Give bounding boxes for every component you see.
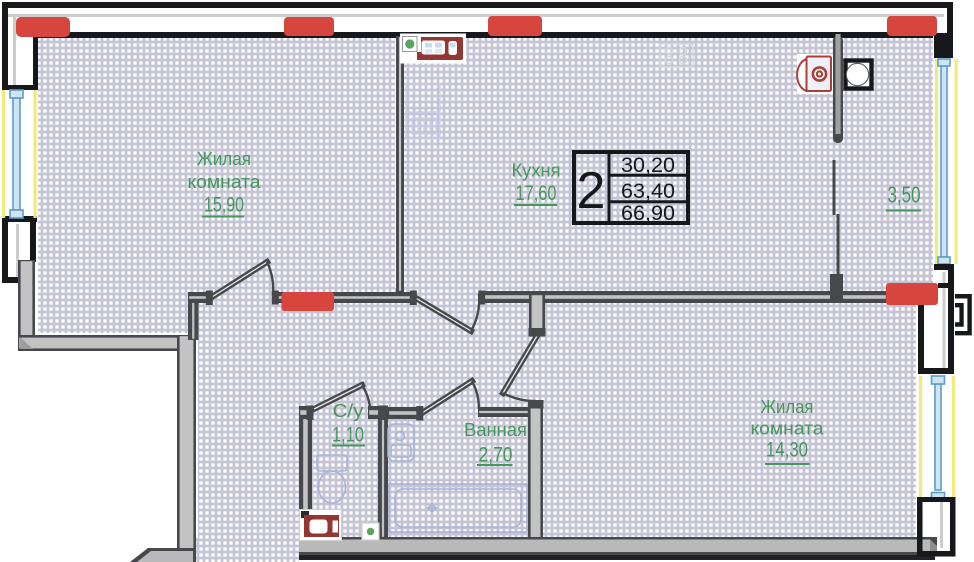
svg-text:3,50: 3,50 bbox=[888, 182, 921, 208]
svg-text:комната: комната bbox=[751, 419, 825, 439]
svg-text:Ванная: Ванная bbox=[464, 420, 527, 440]
svg-text:С/у: С/у bbox=[333, 401, 364, 421]
svg-text:66,90: 66,90 bbox=[621, 202, 675, 225]
svg-text:17,60: 17,60 bbox=[516, 182, 557, 205]
svg-text:Жилая: Жилая bbox=[761, 397, 814, 417]
svg-text:2,70: 2,70 bbox=[479, 444, 513, 467]
svg-text:1,10: 1,10 bbox=[332, 424, 364, 447]
svg-text:30,20: 30,20 bbox=[621, 154, 675, 177]
svg-text:14,30: 14,30 bbox=[766, 439, 808, 462]
svg-text:15,90: 15,90 bbox=[204, 194, 244, 217]
svg-text:2: 2 bbox=[577, 162, 606, 220]
svg-text:Кухня: Кухня bbox=[512, 161, 561, 181]
svg-text:комната: комната bbox=[188, 172, 262, 192]
svg-text:63,40: 63,40 bbox=[621, 180, 675, 203]
svg-text:Жилая: Жилая bbox=[197, 149, 251, 169]
